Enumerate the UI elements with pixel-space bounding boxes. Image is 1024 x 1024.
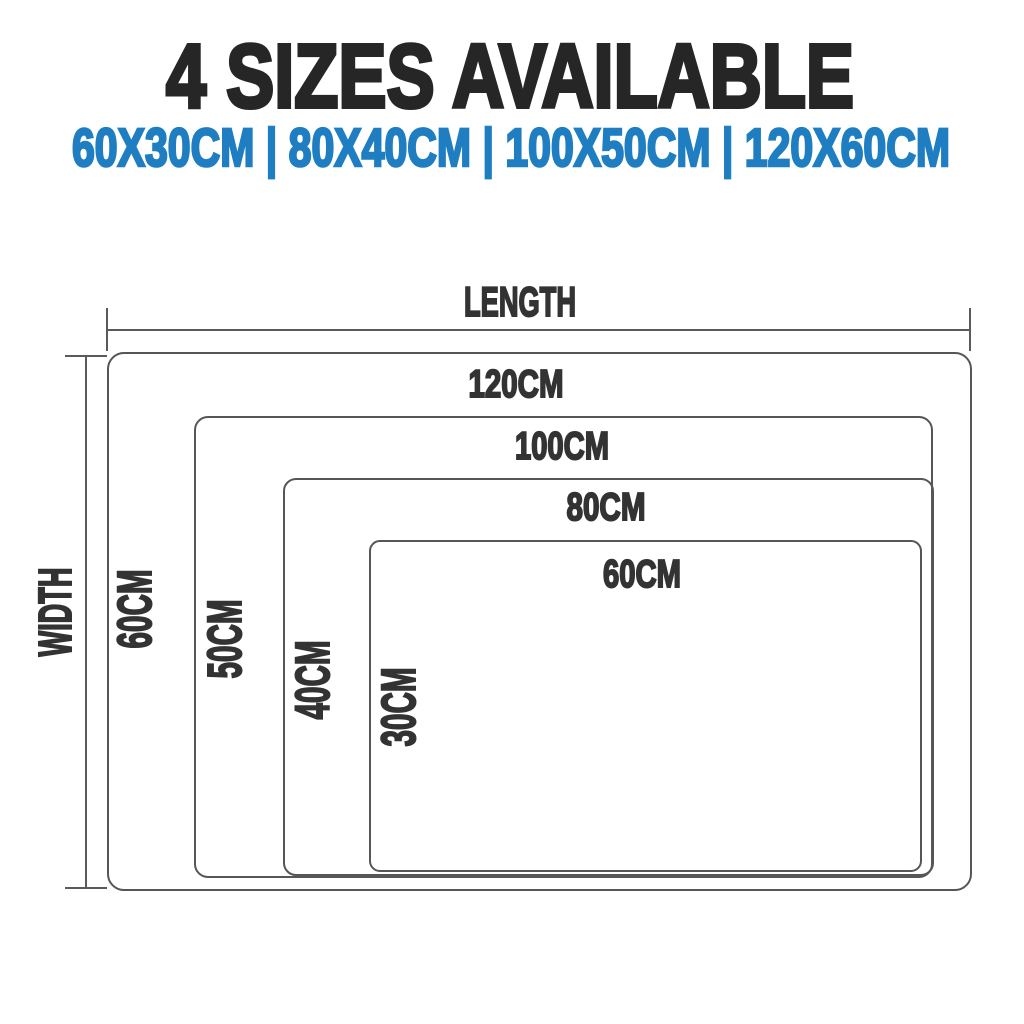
- svg-text:LENGTH: LENGTH: [464, 278, 576, 325]
- svg-text:60CM: 60CM: [603, 553, 681, 596]
- svg-text:40CM: 40CM: [287, 641, 340, 720]
- svg-text:50CM: 50CM: [199, 600, 252, 679]
- svg-text:80CM: 80CM: [567, 486, 646, 529]
- svg-text:120CM: 120CM: [469, 363, 564, 406]
- svg-text:60X30CM | 80X40CM | 100X50CM |: 60X30CM | 80X40CM | 100X50CM | 120X60CM: [72, 118, 950, 179]
- svg-text:4 SIZES AVAILABLE: 4 SIZES AVAILABLE: [166, 27, 854, 127]
- svg-text:60CM: 60CM: [109, 570, 162, 649]
- svg-text:100CM: 100CM: [515, 425, 609, 468]
- svg-text:WIDTH: WIDTH: [29, 568, 81, 657]
- svg-text:30CM: 30CM: [373, 668, 426, 747]
